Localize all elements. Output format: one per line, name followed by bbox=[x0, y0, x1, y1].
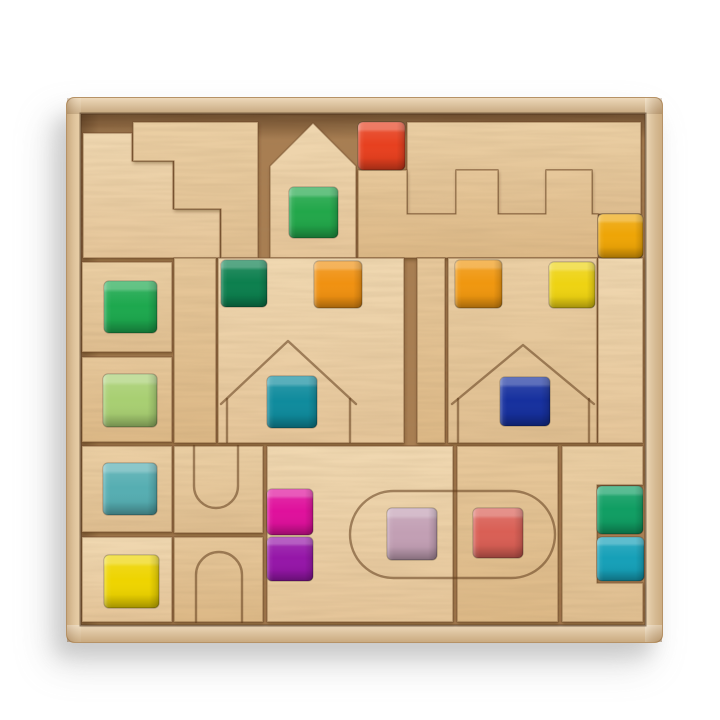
tray-front-rim bbox=[67, 625, 662, 642]
screenshot-root bbox=[0, 0, 720, 720]
gem-lightgreen bbox=[103, 374, 157, 427]
tray-top-wall bbox=[67, 98, 662, 114]
wood-grain-overlay bbox=[81, 114, 645, 625]
gem-yellow-bottom bbox=[104, 555, 159, 608]
gem-green-right bbox=[597, 486, 643, 534]
product-photo-wooden-blocks-tray bbox=[0, 0, 720, 720]
gem-red-cube bbox=[358, 122, 405, 170]
gem-magenta bbox=[267, 489, 313, 535]
gem-emerald bbox=[221, 260, 267, 307]
gem-teal-square bbox=[103, 463, 157, 515]
gem-blue-house bbox=[500, 377, 550, 426]
gem-teal-house bbox=[267, 376, 317, 428]
gem-amber-cube bbox=[598, 214, 643, 258]
gem-orange-left bbox=[314, 261, 362, 308]
gem-green-house bbox=[289, 187, 338, 238]
gem-mauve bbox=[387, 508, 437, 560]
gem-coral bbox=[473, 508, 523, 558]
tray-left-wall bbox=[67, 98, 81, 642]
gem-orange-right bbox=[455, 260, 502, 308]
gem-teal-right bbox=[597, 537, 644, 581]
gem-purple bbox=[267, 537, 313, 581]
tray-right-wall bbox=[645, 98, 662, 642]
gem-green-square bbox=[104, 281, 157, 333]
gem-yellow-top bbox=[549, 262, 595, 308]
